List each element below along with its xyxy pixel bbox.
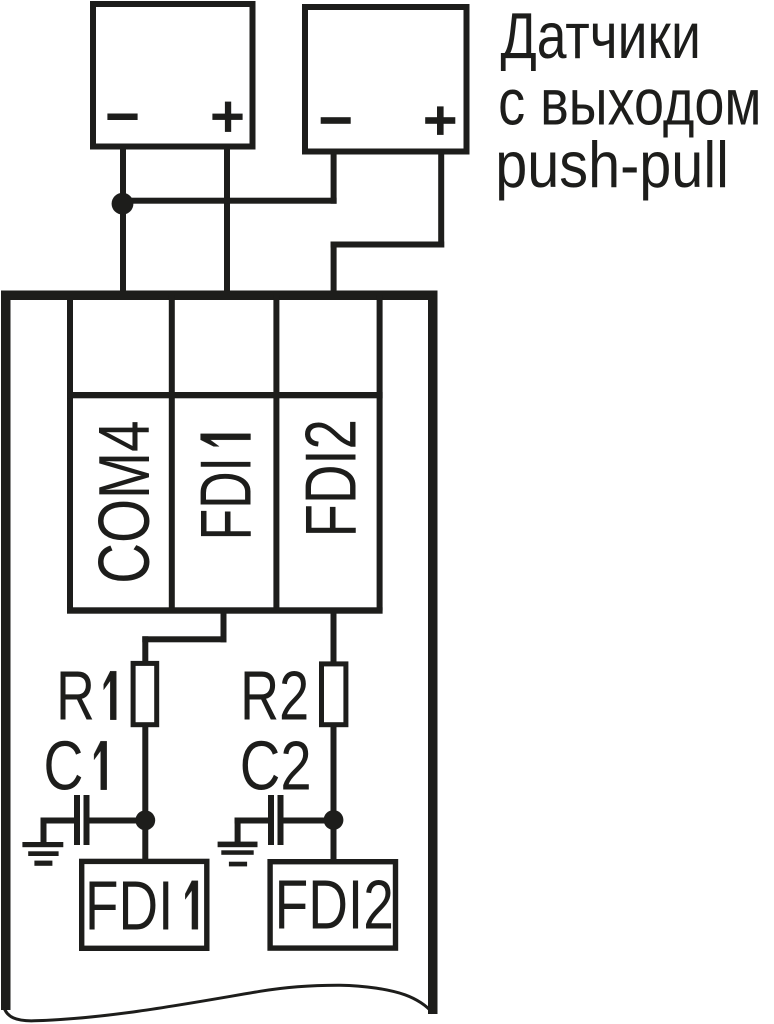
svg-text:R: R bbox=[56, 658, 95, 736]
svg-text:с выходом: с выходом bbox=[498, 66, 761, 139]
svg-text:Датчики: Датчики bbox=[501, 0, 701, 72]
svg-text:FDI2: FDI2 bbox=[290, 419, 371, 537]
svg-text:R2: R2 bbox=[240, 657, 309, 735]
svg-text:FDI2: FDI2 bbox=[275, 866, 394, 944]
svg-text:COM4: COM4 bbox=[83, 420, 164, 583]
svg-text:C2: C2 bbox=[240, 728, 312, 805]
svg-text:C: C bbox=[44, 728, 84, 806]
svg-text:FDI: FDI bbox=[85, 867, 173, 945]
svg-text:push-pull: push-pull bbox=[495, 129, 729, 202]
svg-text:FDI: FDI bbox=[186, 457, 266, 540]
